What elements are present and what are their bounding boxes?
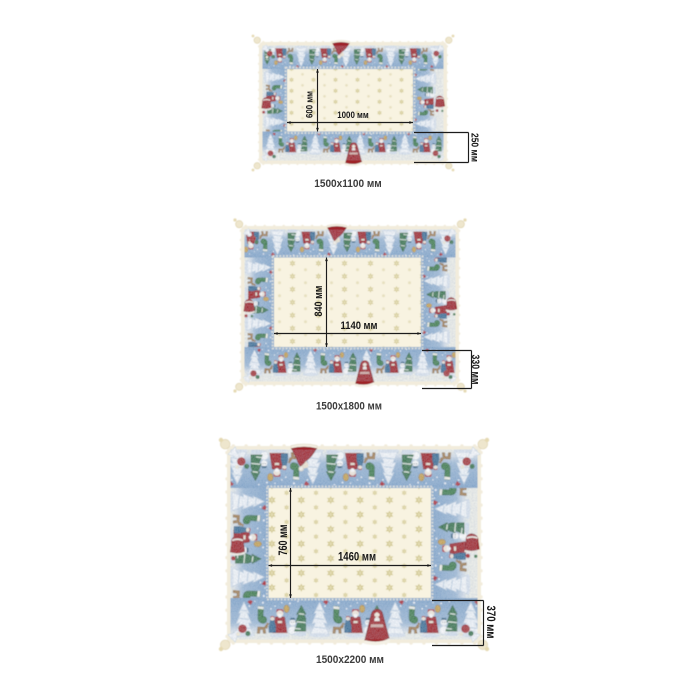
svg-text:1500x2200 мм: 1500x2200 мм — [316, 654, 384, 666]
svg-text:1500x1800 мм: 1500x1800 мм — [316, 401, 382, 413]
svg-text:600 мм: 600 мм — [305, 91, 316, 118]
svg-text:330 мм: 330 мм — [469, 355, 481, 385]
svg-text:1140 мм: 1140 мм — [341, 320, 378, 332]
svg-text:250 мм: 250 мм — [468, 133, 479, 162]
svg-text:840 мм: 840 мм — [313, 285, 325, 316]
svg-text:760 мм: 760 мм — [276, 525, 290, 556]
svg-text:1460 мм: 1460 мм — [338, 550, 376, 564]
svg-text:1000 мм: 1000 мм — [337, 110, 369, 121]
svg-text:1500x1100 мм: 1500x1100 мм — [314, 178, 382, 190]
svg-text:370 мм: 370 мм — [484, 606, 498, 639]
